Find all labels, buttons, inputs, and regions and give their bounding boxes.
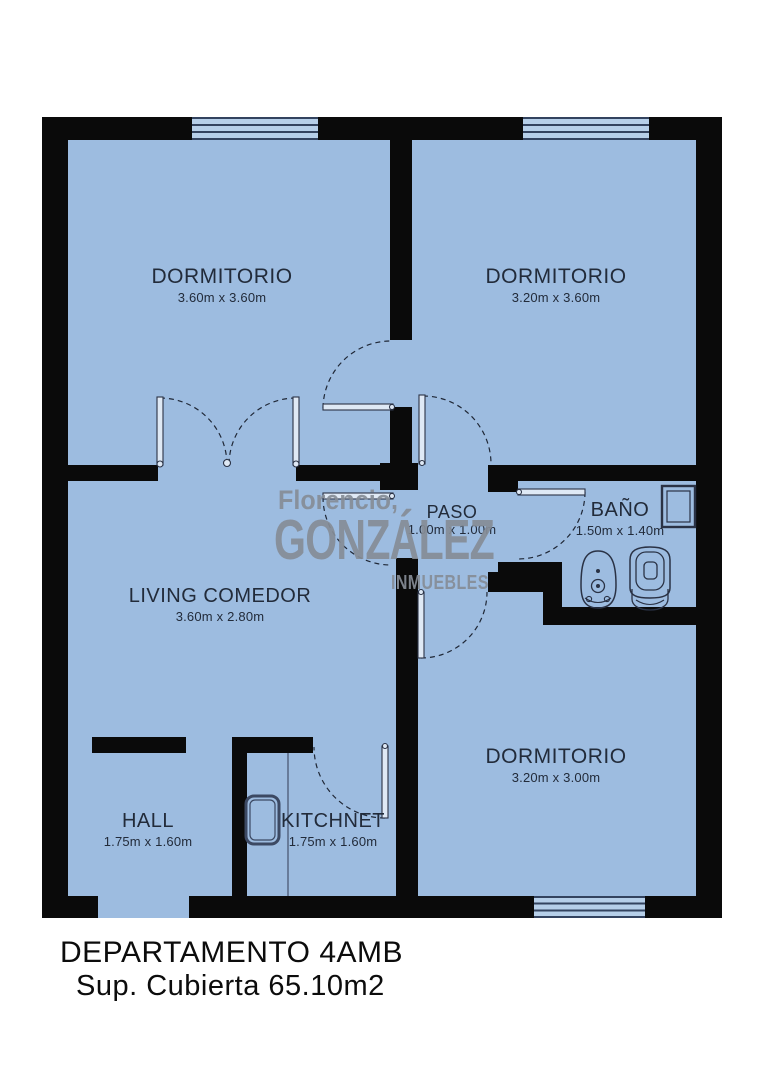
room-name: DORMITORIO [485, 266, 626, 287]
wall-living-hall [92, 737, 186, 753]
room-name: HALL [104, 811, 193, 831]
room-label-kitchnet: KITCHNET 1.75m x 1.60m [281, 811, 385, 848]
outer-wall-right [696, 117, 722, 918]
room-name: DORMITORIO [151, 266, 292, 287]
room-dims: 3.60m x 2.80m [129, 610, 312, 623]
entrance-opening [98, 896, 189, 918]
plan-title: DEPARTAMENTO 4AMB [60, 936, 403, 971]
room-dims: 3.60m x 3.60m [151, 291, 292, 304]
room-label-bano: BAÑO 1.50m x 1.40m [576, 500, 665, 537]
watermark-agency-lastname: GONZÁLEZ [274, 512, 494, 569]
wall-dorm1-living-left [68, 465, 158, 481]
room-label-dormitorio-3: DORMITORIO 3.20m x 3.00m [485, 746, 626, 784]
outer-wall-left [42, 117, 68, 918]
wall-dorm1-dorm2 [390, 140, 412, 340]
floor-plan-page: DORMITORIO 3.60m x 3.60m DORMITORIO 3.20… [0, 0, 764, 1080]
wall-paso-bano-jamb-top [488, 465, 518, 492]
room-label-dormitorio-1: DORMITORIO 3.60m x 3.60m [151, 266, 292, 304]
room-name: LIVING COMEDOR [129, 586, 312, 606]
wall-living-dorm3 [396, 558, 418, 896]
wall-paso-bottom [488, 572, 562, 592]
wall-bano-bottom [560, 607, 696, 625]
wall-bano-top [488, 465, 696, 481]
room-label-living: LIVING COMEDOR 3.60m x 2.80m [129, 586, 312, 623]
room-dims: 3.20m x 3.00m [485, 771, 626, 784]
room-label-dormitorio-2: DORMITORIO 3.20m x 3.60m [485, 266, 626, 304]
watermark-agency-tagline: INMUEBLES [391, 573, 489, 593]
room-dims: 1.50m x 1.40m [576, 524, 665, 537]
room-dims: 1.75m x 1.60m [281, 835, 385, 848]
window-dormitorio-3 [534, 896, 645, 918]
room-name: DORMITORIO [485, 746, 626, 767]
room-dims: 3.20m x 3.60m [485, 291, 626, 304]
room-label-hall: HALL 1.75m x 1.60m [104, 811, 193, 848]
wall-dorm1-living-right [296, 465, 390, 481]
window-dormitorio-2 [523, 117, 649, 140]
wall-dorm1-dorm2-lower [390, 407, 412, 465]
wall-hall-kitchnet [232, 737, 247, 896]
room-dims: 1.75m x 1.60m [104, 835, 193, 848]
room-name: BAÑO [576, 500, 665, 520]
window-dormitorio-1 [192, 117, 318, 140]
plan-covered-area: Sup. Cubierta 65.10m2 [76, 970, 385, 1003]
room-name: KITCHNET [281, 811, 385, 831]
